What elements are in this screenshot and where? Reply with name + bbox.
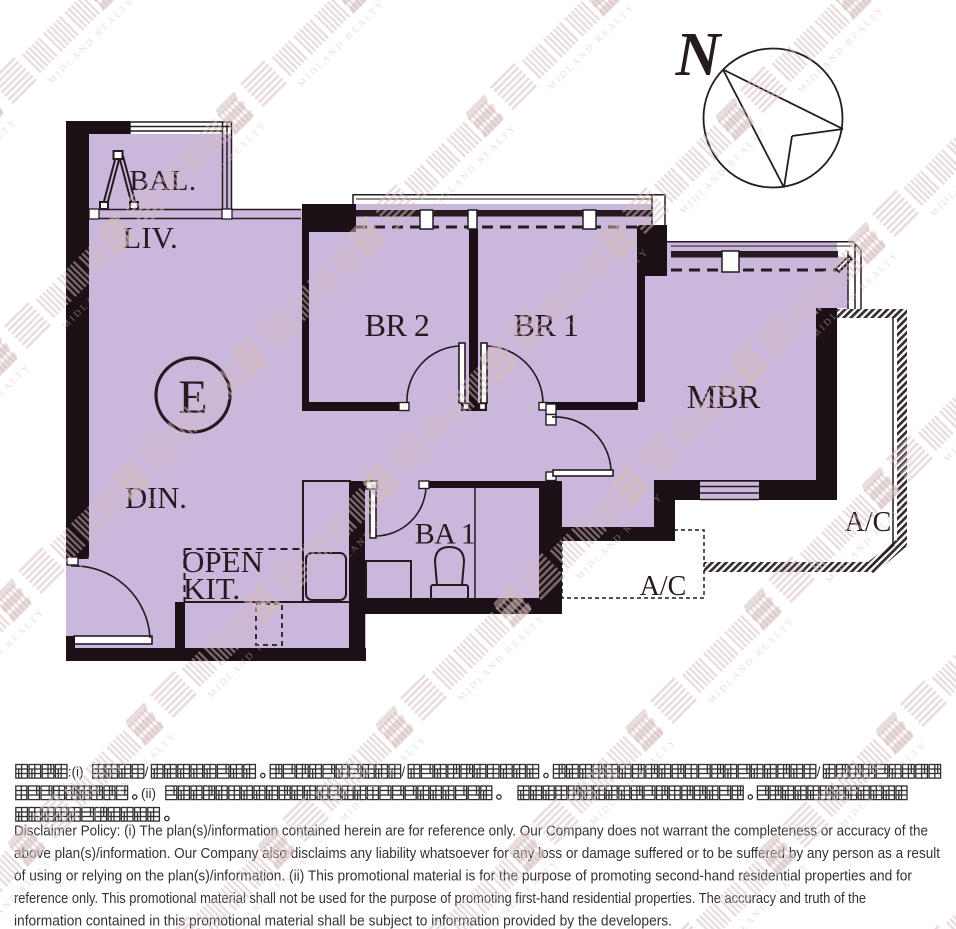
svg-text::(i): :(i) bbox=[68, 765, 84, 780]
svg-text:above plan(s)/information. Our: above plan(s)/information. Our Company a… bbox=[14, 845, 941, 862]
svg-text:KIT.: KIT. bbox=[183, 571, 240, 606]
svg-text:/: / bbox=[817, 765, 821, 780]
svg-text:BR 2: BR 2 bbox=[365, 307, 430, 343]
svg-text:BA 1: BA 1 bbox=[415, 518, 476, 551]
svg-text:information contained in this: information contained in this promotiona… bbox=[14, 913, 672, 929]
svg-text:(ii): (ii) bbox=[141, 786, 156, 801]
svg-text:A/C: A/C bbox=[640, 571, 687, 602]
svg-text:N: N bbox=[675, 21, 723, 89]
